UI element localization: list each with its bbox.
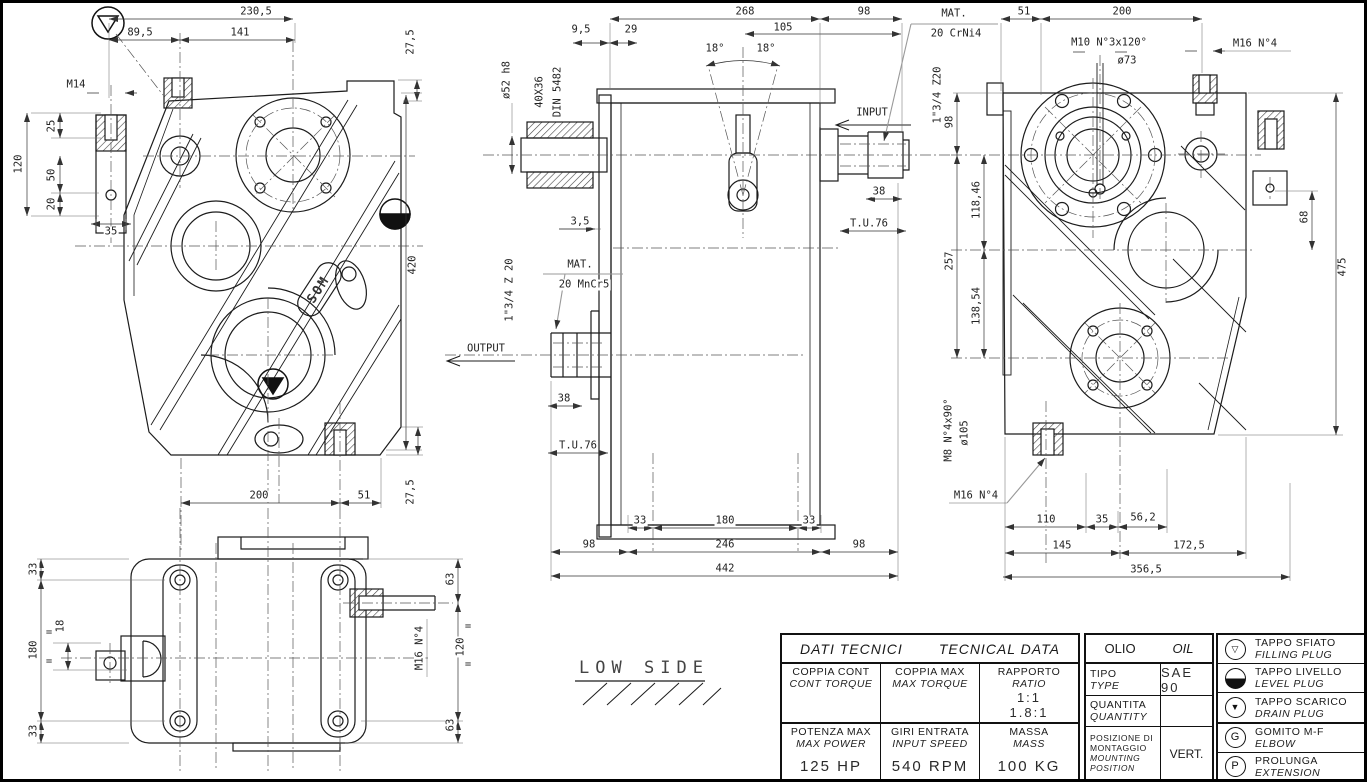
dim-side-105: 105 — [773, 22, 794, 33]
material-input-title: MAT. — [940, 8, 967, 19]
dim-top-eq-2: = — [45, 656, 53, 667]
elbow-en: ELBOW — [1255, 738, 1324, 750]
dim-side-input-tu76: T.U.76 — [849, 218, 889, 229]
dim-front-width-left: 89,5 — [126, 27, 153, 38]
dim-end-145: 145 — [1052, 540, 1073, 551]
dim-end-m16-top: M16 N°4 — [1232, 38, 1278, 49]
cell-max-torque: COPPIA MAX MAX TORQUE — [881, 664, 980, 722]
input-speed-label-en: INPUT SPEED — [892, 738, 968, 750]
dim-end-56-2: 56,2 — [1129, 512, 1156, 523]
dim-top-eq-4: = — [464, 659, 472, 670]
dim-top-eq-3: = — [464, 621, 472, 632]
max-power-label-en: MAX POWER — [796, 738, 866, 750]
dim-side-3-5: 3,5 — [570, 216, 591, 227]
ratio-label-it: RAPPORTO — [998, 666, 1061, 678]
dim-end-356-5: 356,5 — [1129, 564, 1163, 575]
dim-side-98-left: 98 — [582, 539, 597, 550]
legend-row-elbow: G GOMITO M-F ELBOW — [1218, 724, 1366, 753]
dim-front-width-right: 141 — [230, 27, 251, 38]
dim-side-output-38: 38 — [557, 393, 572, 404]
dim-end-dia73: ø73 — [1117, 55, 1138, 66]
dim-front-thread: M14 — [66, 79, 87, 90]
dim-side-180: 180 — [715, 515, 736, 526]
oil-row-type: TIPO TYPE SAE 90 — [1086, 664, 1212, 696]
ratio-label-en: RATIO — [1012, 678, 1046, 690]
dim-front-base-200: 200 — [249, 490, 270, 501]
low-side-label: LOW SIDE — [578, 660, 710, 678]
ratio-value-1: 1:1 — [1017, 690, 1041, 705]
filling-plug-it: TAPPO SFIATO — [1255, 637, 1336, 649]
dim-side-442: 442 — [715, 563, 736, 574]
cell-max-power: POTENZA MAX MAX POWER 125 HP — [782, 724, 881, 781]
elbow-icon: G — [1225, 727, 1246, 748]
max-power-label-it: POTENZA MAX — [791, 726, 871, 738]
front-view-centerlines — [75, 33, 423, 551]
dim-side-dia52: ø52 h8 — [501, 60, 512, 100]
end-view-linework — [987, 63, 1287, 455]
max-torque-label-en: MAX TORQUE — [892, 678, 967, 690]
dim-front-20: 20 — [46, 197, 57, 212]
dim-front-50: 50 — [46, 168, 57, 183]
front-view-extlines — [31, 23, 423, 508]
dim-end-110: 110 — [1036, 514, 1057, 525]
dim-side-246: 246 — [715, 539, 736, 550]
oil-row-quantity: QUANTITA QUANTITY — [1086, 696, 1212, 727]
side-view-extlines — [512, 23, 902, 581]
dim-side-33-right: 33 — [802, 515, 817, 526]
oil-row-mounting: POSIZIONE DI MONTAGGIO MOUNTING POSITION… — [1086, 727, 1212, 781]
mass-label-it: MASSA — [1009, 726, 1048, 738]
dim-end-138-54: 138,54 — [971, 286, 982, 326]
front-view-plug-symbols — [92, 7, 410, 399]
dim-front-lug-top: 27,5 — [405, 28, 416, 55]
dim-side-spline: 40X36 — [534, 75, 545, 109]
dim-side-268: 268 — [735, 6, 756, 17]
oil-type-value: SAE 90 — [1161, 664, 1212, 695]
front-view-linework — [96, 78, 401, 455]
oil-header: OLIO OIL — [1086, 635, 1212, 664]
dim-end-475: 475 — [1337, 257, 1348, 278]
cont-torque-label-it: COPPIA CONT — [792, 666, 869, 678]
dim-front-lug-bottom: 27,5 — [405, 478, 416, 505]
table-header: DATI TECNICI TECNICAL DATA — [782, 635, 1078, 664]
top-view-centerlines — [61, 508, 453, 771]
dim-top-18: 18 — [55, 619, 66, 634]
input-label: INPUT — [855, 107, 889, 118]
cell-input-speed: GIRI ENTRATA INPUT SPEED 540 RPM — [881, 724, 980, 781]
extension-en: EXTENSION — [1255, 767, 1320, 779]
cell-ratio: RAPPORTO RATIO 1:1 1.8:1 — [980, 664, 1078, 722]
level-plug-en: LEVEL PLUG — [1255, 678, 1342, 690]
plug-legend: ▽ TAPPO SFIATO FILLING PLUG TAPPO LIVELL… — [1216, 633, 1367, 782]
drain-plug-it: TAPPO SCARICO — [1255, 696, 1347, 708]
dim-front-width-total: 230,5 — [239, 6, 273, 17]
oil-title-en: OIL — [1173, 641, 1194, 656]
side-view-centerlines — [445, 47, 951, 551]
dim-top-eq-1: = — [45, 627, 53, 638]
dim-side-angle-right: 18° — [756, 43, 777, 54]
output-label: OUTPUT — [466, 343, 506, 354]
dim-top-180: 180 — [28, 640, 39, 661]
top-view-linework — [96, 537, 721, 751]
dim-side-output-spline: 1"3/4 Z 20 — [504, 257, 515, 322]
dim-end-68: 68 — [1299, 210, 1310, 225]
dim-end-m8: M8 N°4x90° — [943, 397, 954, 462]
dim-top-33-bottom: 33 — [28, 724, 39, 739]
max-torque-label-it: COPPIA MAX — [895, 666, 965, 678]
mounting-position-en: MOUNTING POSITION — [1090, 754, 1156, 774]
dim-front-35: 35 — [104, 226, 119, 237]
dim-side-input-38: 38 — [872, 186, 887, 197]
dim-side-input-spline: 1"3/4 Z20 — [932, 66, 943, 125]
level-plug-it: TAPPO LIVELLO — [1255, 666, 1342, 678]
dim-end-m16-bottom: M16 N°4 — [953, 490, 999, 501]
drawing-sheet: 230,5 89,5 141 27,5 M14 25 120 50 20 35 … — [0, 0, 1367, 782]
ratio-value-2: 1.8:1 — [1010, 705, 1049, 720]
elbow-it: GOMITO M-F — [1255, 726, 1324, 738]
input-speed-value: 540 RPM — [892, 750, 969, 779]
dim-end-35: 35 — [1095, 514, 1110, 525]
oil-type-en: TYPE — [1090, 680, 1156, 692]
dim-front-base-51: 51 — [357, 490, 372, 501]
mass-value: 100 KG — [998, 750, 1061, 779]
mounting-position-it: POSIZIONE DI MONTAGGIO — [1090, 734, 1156, 754]
legend-row-extension: P PROLUNGA EXTENSION — [1218, 753, 1366, 781]
table-title-en: TECNICAL DATA — [939, 641, 1060, 657]
level-plug-icon — [1225, 668, 1246, 689]
dim-front-25: 25 — [46, 119, 57, 134]
dim-end-118-46: 118,46 — [971, 180, 982, 220]
material-output-value: 20 MnCr5 — [558, 279, 611, 290]
cont-torque-label-en: CONT TORQUE — [790, 678, 873, 690]
dim-side-29: 29 — [624, 24, 639, 35]
technical-data-table: DATI TECNICI TECNICAL DATA COPPIA CONT C… — [780, 633, 1080, 782]
cell-cont-torque: COPPIA CONT CONT TORQUE — [782, 664, 881, 722]
breather-plug-icon: ▽ — [1225, 639, 1246, 660]
dim-side-9-5: 9,5 — [571, 24, 592, 35]
dim-side-din: DIN 5482 — [552, 66, 563, 119]
dim-end-172-5: 172,5 — [1172, 540, 1206, 551]
mass-label-en: MASS — [1013, 738, 1045, 750]
table-row-performance: POTENZA MAX MAX POWER 125 HP GIRI ENTRAT… — [782, 724, 1078, 781]
material-output-title: MAT. — [566, 259, 593, 270]
dim-end-98: 98 — [944, 115, 955, 130]
dim-end-51: 51 — [1017, 6, 1032, 17]
legend-row-level-plug: TAPPO LIVELLO LEVEL PLUG — [1218, 664, 1366, 693]
mounting-position-value: VERT. — [1161, 727, 1212, 781]
dim-end-m10: M10 N°3x120° — [1070, 37, 1148, 48]
drain-plug-en: DRAIN PLUG — [1255, 708, 1347, 720]
dim-top-120: 120 — [455, 637, 466, 658]
oil-type-label: TIPO TYPE — [1086, 664, 1161, 695]
table-title-it: DATI TECNICI — [800, 641, 903, 657]
side-view-linework — [447, 89, 911, 539]
dim-end-200: 200 — [1112, 6, 1133, 17]
oil-quantity-value — [1161, 696, 1212, 726]
dim-front-120: 120 — [13, 154, 24, 175]
end-view-dimlines — [957, 19, 1336, 577]
dim-top-63-bottom: 63 — [445, 718, 456, 733]
dim-top-33-top: 33 — [28, 562, 39, 577]
legend-row-filling-plug: ▽ TAPPO SFIATO FILLING PLUG — [1218, 635, 1366, 664]
dim-end-dia105: ø105 — [959, 419, 970, 446]
oil-title-it: OLIO — [1104, 641, 1135, 656]
front-view-dimlines — [27, 19, 418, 503]
oil-quantity-it: QUANTITA — [1090, 699, 1156, 711]
dim-side-98-right: 98 — [852, 539, 867, 550]
max-power-value: 125 HP — [800, 750, 862, 779]
dim-front-height-total: 420 — [407, 255, 418, 276]
dim-side-98: 98 — [857, 6, 872, 17]
table-row-torque: COPPIA CONT CONT TORQUE COPPIA MAX MAX T… — [782, 664, 1078, 724]
dim-side-output-tu76: T.U.76 — [558, 440, 598, 451]
filling-plug-en: FILLING PLUG — [1255, 649, 1336, 661]
oil-table: OLIO OIL TIPO TYPE SAE 90 QUANTITA QUANT… — [1084, 633, 1214, 782]
dim-top-63-top: 63 — [445, 572, 456, 587]
dim-side-33-left: 33 — [633, 515, 648, 526]
cell-mass: MASSA MASS 100 KG — [980, 724, 1078, 781]
oil-quantity-label: QUANTITA QUANTITY — [1086, 696, 1161, 726]
mounting-position-label: POSIZIONE DI MONTAGGIO MOUNTING POSITION — [1086, 727, 1161, 781]
extension-icon: P — [1225, 756, 1246, 777]
dim-top-m16: M16 N°4 — [414, 625, 425, 671]
dim-side-angle-left: 18° — [705, 43, 726, 54]
extension-it: PROLUNGA — [1255, 755, 1320, 767]
legend-row-drain-plug: ▼ TAPPO SCARICO DRAIN PLUG — [1218, 693, 1366, 723]
drain-plug-icon: ▼ — [1225, 697, 1246, 718]
oil-type-it: TIPO — [1090, 668, 1156, 680]
oil-quantity-en: QUANTITY — [1090, 711, 1156, 723]
input-speed-label-it: GIRI ENTRATA — [891, 726, 969, 738]
material-input-value: 20 CrNi4 — [930, 28, 983, 39]
dim-end-257: 257 — [944, 251, 955, 272]
